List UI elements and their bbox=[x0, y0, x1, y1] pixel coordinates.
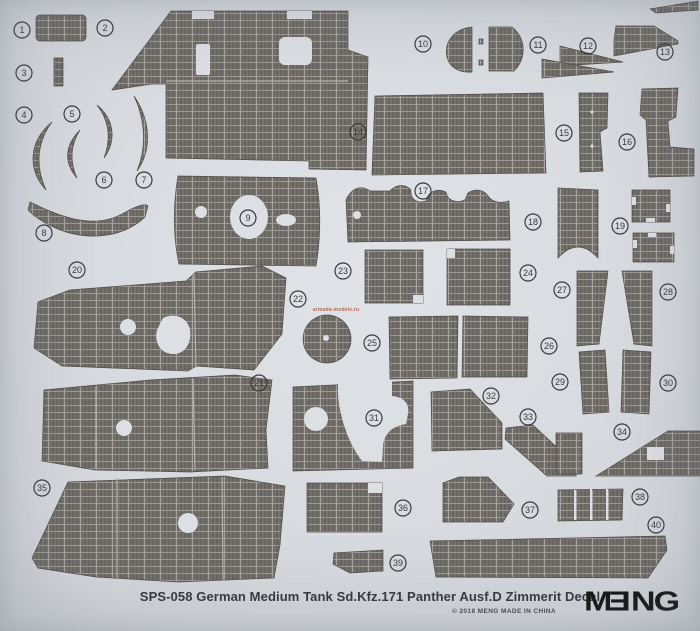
sheet-title: SPS-058 German Medium Tank Sd.Kfz.171 Pa… bbox=[100, 589, 640, 604]
piece-number-badge: 4 bbox=[16, 107, 32, 123]
decal-piece-hole bbox=[156, 316, 190, 354]
decal-piece-hole bbox=[368, 483, 382, 493]
decal-piece-hole bbox=[353, 211, 361, 219]
decal-sheet-photo: 1234567891011121314151617181920212223242… bbox=[0, 0, 700, 631]
decal-piece-hole bbox=[591, 111, 594, 114]
decal-piece bbox=[372, 93, 546, 175]
piece-number-badge: 33 bbox=[520, 409, 536, 425]
piece-number-label: 18 bbox=[528, 217, 538, 227]
piece-number-label: 16 bbox=[622, 137, 632, 147]
piece-number-label: 22 bbox=[293, 294, 303, 304]
decal-piece bbox=[430, 536, 667, 578]
piece-number-badge: 13 bbox=[657, 44, 673, 60]
decal-piece bbox=[34, 266, 286, 371]
decal-piece-hole bbox=[120, 319, 136, 335]
piece-number-badge: 11 bbox=[530, 37, 546, 53]
meng-logo-letter: G bbox=[654, 586, 678, 617]
piece-number-label: 33 bbox=[523, 412, 533, 422]
meng-logo-letter: E bbox=[610, 586, 631, 618]
decal-piece-hole bbox=[574, 490, 576, 520]
piece-number-label: 8 bbox=[41, 228, 46, 238]
piece-number-label: 39 bbox=[393, 558, 403, 568]
piece-number-badge: 23 bbox=[335, 263, 351, 279]
piece-number-label: 20 bbox=[72, 265, 82, 275]
decal-piece bbox=[577, 271, 608, 346]
decal-piece bbox=[579, 350, 609, 414]
piece-number-badge: 15 bbox=[556, 125, 572, 141]
piece-number-label: 15 bbox=[559, 128, 569, 138]
piece-number-label: 30 bbox=[663, 378, 673, 388]
piece-number-label: 17 bbox=[418, 186, 428, 196]
piece-number-label: 40 bbox=[651, 520, 661, 530]
decal-piece bbox=[32, 476, 285, 582]
piece-number-label: 7 bbox=[141, 175, 146, 185]
piece-number-label: 14 bbox=[353, 127, 363, 137]
decal-piece bbox=[112, 11, 368, 170]
piece-number-badge: 17 bbox=[415, 183, 431, 199]
piece-number-badge: 26 bbox=[541, 338, 557, 354]
decal-piece bbox=[632, 190, 670, 222]
piece-number-badge: 25 bbox=[364, 335, 380, 351]
piece-number-label: 37 bbox=[525, 505, 535, 515]
shop-watermark: armada-models.ru bbox=[306, 307, 366, 313]
piece-number-label: 3 bbox=[21, 68, 26, 78]
piece-number-badge: 22 bbox=[290, 291, 306, 307]
decal-piece bbox=[640, 88, 694, 177]
decal-piece bbox=[489, 27, 523, 71]
decal-piece-hole bbox=[670, 246, 674, 254]
piece-number-label: 5 bbox=[69, 109, 74, 119]
piece-number-label: 10 bbox=[418, 39, 428, 49]
decal-piece bbox=[333, 550, 383, 573]
decal-piece bbox=[621, 350, 651, 414]
decal-piece-hole bbox=[287, 11, 312, 19]
decal-piece bbox=[622, 271, 652, 346]
copyright-line: © 2018 MENG MADE IN CHINA bbox=[452, 608, 602, 615]
decal-piece bbox=[446, 27, 472, 72]
piece-number-label: 24 bbox=[523, 268, 533, 278]
decal-piece bbox=[54, 58, 63, 86]
piece-number-badge: 12 bbox=[580, 38, 596, 54]
decal-piece bbox=[33, 122, 52, 190]
piece-number-label: 11 bbox=[533, 40, 542, 50]
piece-number-badge: 7 bbox=[136, 172, 152, 188]
piece-number-label: 32 bbox=[486, 391, 496, 401]
decal-sheet-svg: 1234567891011121314151617181920212223242… bbox=[0, 0, 700, 631]
piece-number-badge: 36 bbox=[395, 500, 411, 516]
meng-logo-letter: M bbox=[584, 586, 610, 617]
piece-number-badge: 38 bbox=[632, 489, 648, 505]
decal-piece-hole bbox=[590, 489, 592, 520]
decal-piece bbox=[558, 188, 598, 258]
piece-number-badge: 40 bbox=[648, 517, 664, 533]
decal-piece bbox=[633, 233, 674, 262]
piece-number-badge: 34 bbox=[614, 424, 630, 440]
piece-number-label: 23 bbox=[338, 266, 348, 276]
decal-piece bbox=[68, 130, 80, 178]
decal-piece-hole bbox=[279, 37, 312, 65]
decal-piece bbox=[447, 249, 510, 305]
piece-number-label: 13 bbox=[660, 47, 670, 57]
decal-piece-hole bbox=[304, 407, 328, 431]
piece-number-badge: 8 bbox=[36, 225, 52, 241]
piece-number-label: 1 bbox=[19, 25, 24, 35]
piece-number-badge: 32 bbox=[483, 388, 499, 404]
decal-piece-hole bbox=[276, 214, 296, 226]
piece-number-badge: 37 bbox=[522, 502, 538, 518]
decal-piece bbox=[42, 375, 272, 472]
piece-number-badge: 6 bbox=[96, 172, 112, 188]
piece-number-badge: 1 bbox=[14, 22, 30, 38]
decal-piece bbox=[36, 15, 86, 41]
decal-piece-hole bbox=[116, 420, 132, 436]
meng-logo: MENG bbox=[584, 586, 678, 619]
decal-piece-hole bbox=[413, 295, 423, 303]
piece-number-badge: 24 bbox=[520, 265, 536, 281]
piece-number-label: 28 bbox=[663, 287, 673, 297]
decal-piece-hole bbox=[647, 447, 664, 460]
decal-piece bbox=[443, 477, 514, 522]
decal-piece-hole bbox=[632, 197, 636, 205]
decal-piece bbox=[97, 105, 112, 158]
decal-piece-hole bbox=[666, 204, 670, 212]
piece-number-badge: 3 bbox=[16, 65, 32, 81]
piece-number-label: 19 bbox=[615, 221, 625, 231]
decal-piece-hole bbox=[606, 489, 608, 520]
piece-number-badge: 2 bbox=[97, 20, 113, 36]
piece-number-label: 21 bbox=[254, 378, 264, 388]
piece-number-label: 36 bbox=[398, 503, 408, 513]
decal-piece bbox=[462, 316, 528, 377]
piece-number-label: 9 bbox=[245, 213, 250, 223]
decal-piece-hole bbox=[196, 44, 210, 75]
decal-piece bbox=[134, 96, 148, 171]
piece-number-label: 12 bbox=[583, 41, 593, 51]
decal-piece-hole bbox=[195, 206, 207, 218]
decal-piece bbox=[389, 316, 458, 379]
decal-piece-hole bbox=[648, 233, 656, 237]
decal-piece-hole bbox=[591, 145, 594, 148]
decal-piece bbox=[650, 1, 698, 13]
decal-piece-hole bbox=[323, 335, 329, 341]
decal-piece-hole bbox=[178, 513, 198, 533]
piece-number-badge: 28 bbox=[660, 284, 676, 300]
piece-number-badge: 35 bbox=[34, 480, 50, 496]
piece-number-badge: 5 bbox=[64, 106, 80, 122]
decal-piece-hole bbox=[192, 11, 214, 19]
piece-number-badge: 30 bbox=[660, 375, 676, 391]
piece-number-label: 31 bbox=[369, 413, 379, 423]
decal-piece-hole bbox=[447, 249, 455, 258]
piece-number-badge: 18 bbox=[525, 214, 541, 230]
piece-number-label: 29 bbox=[555, 377, 565, 387]
piece-number-badge: 27 bbox=[554, 282, 570, 298]
piece-number-label: 38 bbox=[635, 492, 645, 502]
piece-number-label: 4 bbox=[21, 110, 26, 120]
piece-number-badge: 10 bbox=[415, 36, 431, 52]
piece-number-label: 35 bbox=[37, 483, 47, 493]
piece-number-badge: 39 bbox=[390, 555, 406, 571]
piece-number-badge: 19 bbox=[612, 218, 628, 234]
piece-number-label: 6 bbox=[101, 175, 106, 185]
decal-piece-hole bbox=[646, 218, 655, 222]
piece-number-label: 2 bbox=[102, 23, 107, 33]
decal-piece bbox=[556, 433, 582, 474]
piece-number-label: 26 bbox=[544, 341, 554, 351]
piece-number-badge: 29 bbox=[552, 374, 568, 390]
decal-piece bbox=[579, 93, 608, 172]
meng-logo-letter: N bbox=[631, 586, 654, 617]
piece-number-label: 27 bbox=[557, 285, 567, 295]
decal-piece bbox=[479, 39, 483, 44]
decal-piece bbox=[479, 60, 483, 65]
piece-number-label: 25 bbox=[367, 338, 377, 348]
decal-pieces-layer bbox=[28, 1, 700, 582]
piece-number-label: 34 bbox=[617, 427, 627, 437]
decal-piece-hole bbox=[633, 240, 637, 248]
piece-number-badge: 16 bbox=[619, 134, 635, 150]
piece-number-badge: 20 bbox=[69, 262, 85, 278]
